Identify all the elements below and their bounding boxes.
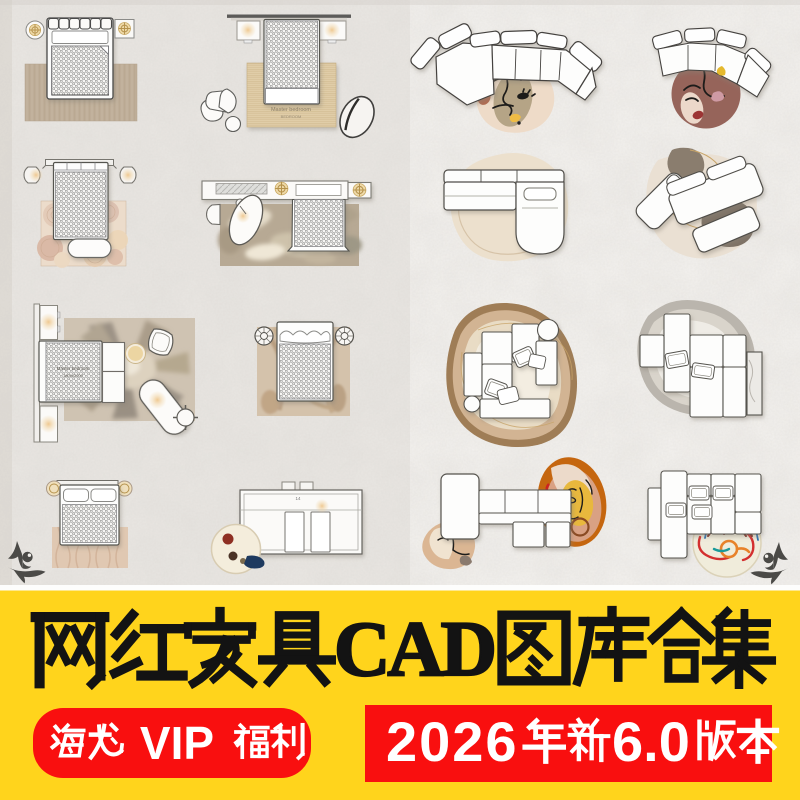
svg-text:BEDROOM: BEDROOM — [281, 114, 302, 119]
svg-text:6.0: 6.0 — [612, 710, 690, 773]
svg-text:Master bedroom: Master bedroom — [271, 107, 311, 113]
svg-text:1800x2000: 1800x2000 — [63, 373, 84, 378]
svg-text:CAD: CAD — [334, 605, 494, 692]
svg-text:VIP: VIP — [140, 717, 214, 769]
svg-text:2026: 2026 — [386, 710, 519, 773]
svg-text:14: 14 — [295, 496, 301, 501]
svg-text:Master bedroom: Master bedroom — [57, 366, 90, 371]
